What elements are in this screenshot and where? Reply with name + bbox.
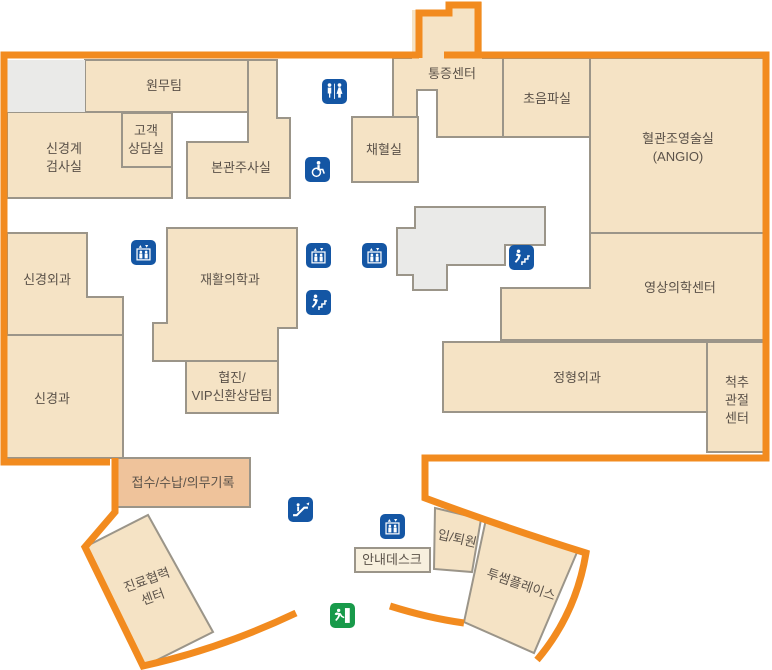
elevator-icon <box>131 240 156 265</box>
room-twosome-shape <box>464 519 578 653</box>
room-spine-shape <box>707 342 766 452</box>
gray-block-shape <box>7 60 85 112</box>
room-ortho-shape <box>443 342 707 412</box>
room-vip-shape <box>186 361 278 413</box>
room-blood-shape <box>352 117 418 182</box>
stairs-icon <box>306 290 331 315</box>
room-angio-shape <box>590 58 766 233</box>
hospital-floor-map: 원무팀 신경계 검사실 고객 상담실 본관주사실 통증센터 초음파실 혈관조영술… <box>0 0 772 670</box>
stairs-icon <box>509 245 534 270</box>
escalator-icon <box>288 497 313 522</box>
room-imaging-shape <box>501 233 766 340</box>
room-neurosurgery-shape <box>7 233 123 335</box>
emergency-exit-icon <box>330 603 355 628</box>
room-rehab-shape <box>153 228 297 361</box>
restroom-icon <box>322 79 347 104</box>
floor-geometry <box>0 0 772 670</box>
wheelchair-icon <box>305 157 330 182</box>
elevator-icon <box>306 243 331 268</box>
info-desk-shape <box>355 548 430 572</box>
room-customer-shape <box>122 113 172 167</box>
room-ultrasound-shape <box>503 58 590 137</box>
elevator-icon <box>362 243 387 268</box>
room-admin-shape <box>85 60 248 112</box>
room-reception-shape <box>116 458 250 507</box>
room-neurology-shape <box>5 335 123 458</box>
elevator-icon <box>380 514 405 539</box>
